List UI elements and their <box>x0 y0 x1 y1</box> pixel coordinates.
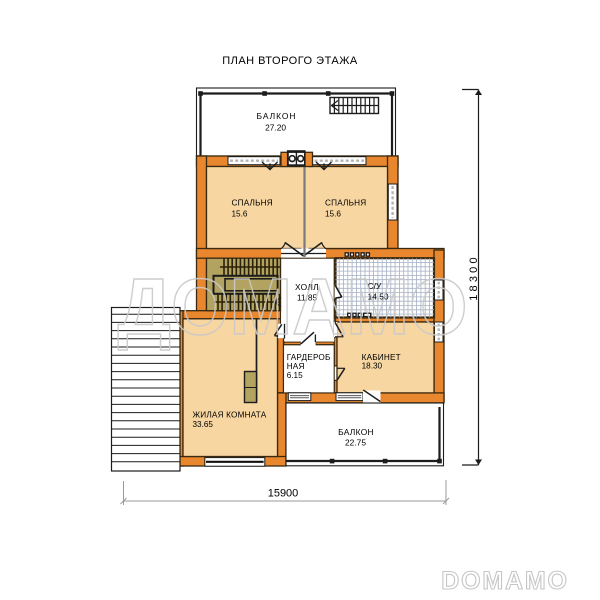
svg-text:15.6: 15.6 <box>325 209 341 218</box>
svg-text:СПАЛЬНЯ: СПАЛЬНЯ <box>325 199 366 208</box>
svg-text:ПЛАН ВТОРОГО ЭТАЖА: ПЛАН ВТОРОГО ЭТАЖА <box>222 55 358 67</box>
svg-text:НАЯ: НАЯ <box>287 362 305 371</box>
svg-text:15.6: 15.6 <box>232 209 248 218</box>
svg-text:15900: 15900 <box>268 488 299 500</box>
svg-text:БАЛКОН: БАЛКОН <box>338 427 374 437</box>
svg-text:18300: 18300 <box>468 254 480 301</box>
svg-text:33.65: 33.65 <box>193 420 214 429</box>
svg-text:DOMAMO: DOMAMO <box>441 567 568 595</box>
svg-text:18.30: 18.30 <box>362 361 383 370</box>
svg-text:ГАРДЕРОБ: ГАРДЕРОБ <box>287 353 331 362</box>
svg-text:6.15: 6.15 <box>287 371 303 380</box>
svg-text:СПАЛЬНЯ: СПАЛЬНЯ <box>232 199 273 208</box>
svg-text:ЖИЛАЯ КОМНАТА: ЖИЛАЯ КОМНАТА <box>193 410 267 419</box>
svg-text:ДОМАМО: ДОМАМО <box>118 262 468 351</box>
svg-text:БАЛКОН: БАЛКОН <box>257 111 297 121</box>
svg-text:22.75: 22.75 <box>345 437 366 447</box>
svg-text:27.20: 27.20 <box>265 122 286 132</box>
